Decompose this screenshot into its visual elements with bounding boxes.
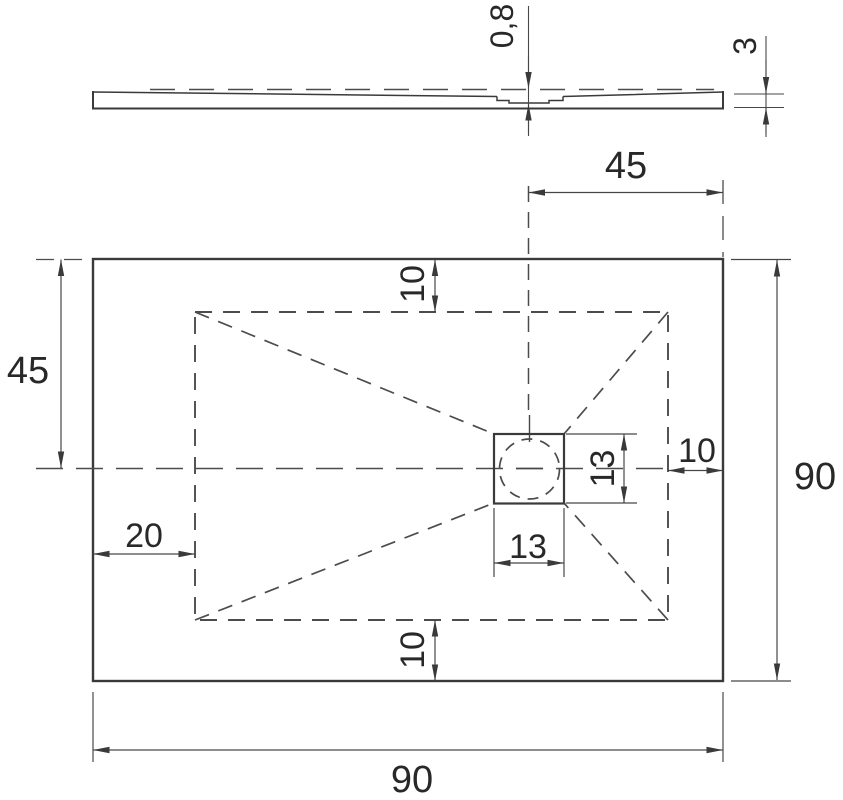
dimension-drain-center-from-right: 45: [529, 145, 724, 257]
dim-label-inset-bottom: 10: [394, 631, 432, 669]
dim-label-inset-right: 10: [678, 432, 716, 470]
dim-label-overall-width: 90: [391, 759, 433, 800]
dimension-edge-thickness: 3: [727, 36, 784, 137]
dimension-drain-center-from-top: 45: [7, 260, 92, 469]
dim-label-edge-thickness: 3: [727, 37, 763, 55]
dimension-inset-right: 10: [668, 432, 723, 471]
dim-label-inset-left: 20: [125, 517, 163, 555]
dim-label-drain-center-from-top: 45: [7, 350, 49, 392]
dim-label-drain-height: 13: [584, 450, 622, 488]
dim-label-inset-top: 10: [394, 265, 432, 303]
dimension-recess-depth: 0,8: [484, 4, 529, 136]
diagonal-slope-line: [564, 503, 668, 620]
dim-label-drain-width: 13: [509, 528, 547, 566]
diagonal-slope-line: [564, 312, 668, 434]
dimension-overall-length: 90: [731, 260, 836, 682]
dim-label-overall-length: 90: [794, 456, 836, 498]
shower-tray-technical-drawing: 0,8 3 45: [0, 0, 843, 800]
diagonal-slope-line: [195, 312, 494, 434]
plan-view: 45 45 90 90 10 10: [7, 145, 836, 800]
dimension-drain-width: 13: [494, 508, 564, 577]
dimension-inset-top: 10: [394, 260, 435, 313]
drawing-canvas: 0,8 3 45: [0, 0, 843, 800]
dimension-overall-width: 90: [93, 692, 723, 800]
dim-label-drain-center-from-right: 45: [605, 145, 647, 187]
tray-top-surface: [93, 92, 723, 97]
dim-label-recess-depth: 0,8: [484, 4, 520, 48]
drain-recess-profile: [497, 97, 563, 104]
dimension-inset-left: 20: [93, 517, 195, 555]
dimension-inset-bottom: 10: [394, 620, 435, 681]
diagonal-slope-line: [195, 503, 494, 620]
section-view: 0,8 3: [93, 4, 784, 137]
tray-outer-outline: [93, 259, 723, 681]
